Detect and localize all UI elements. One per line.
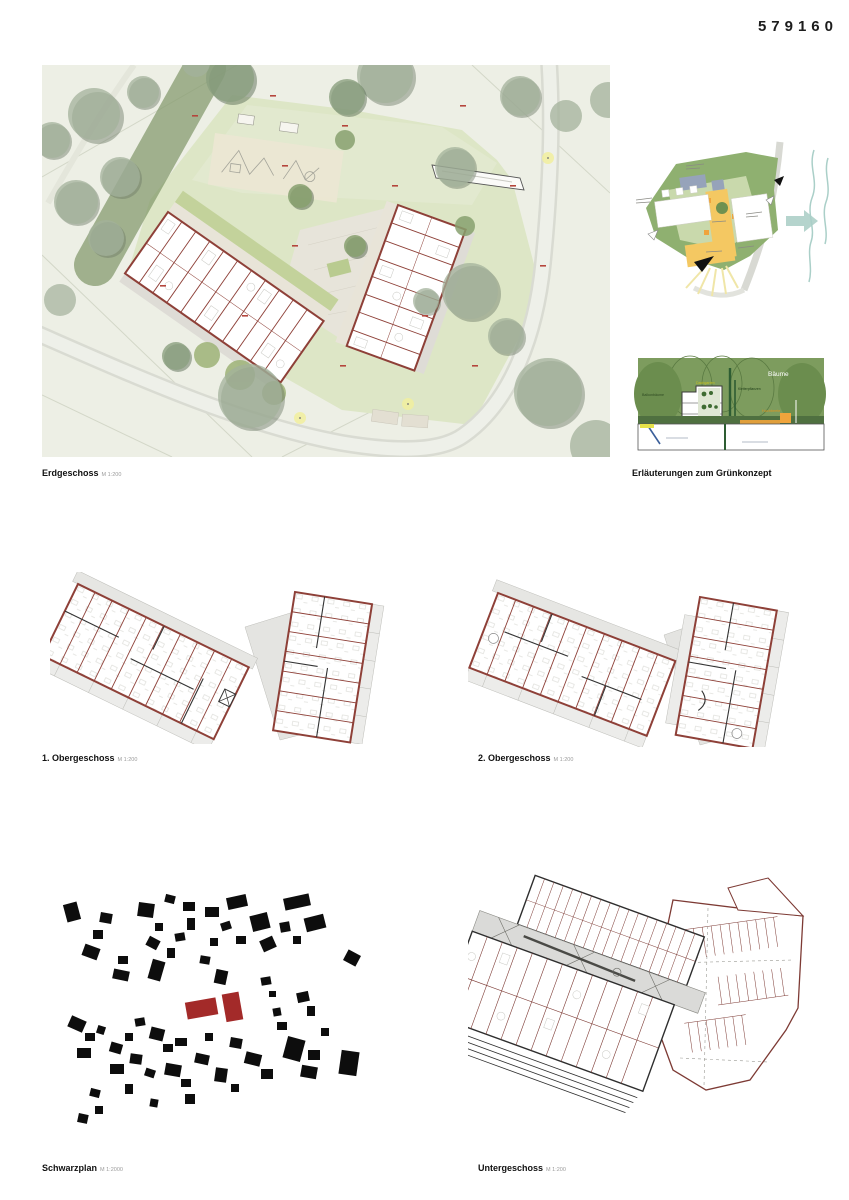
stream	[809, 150, 828, 282]
planter-strip	[740, 420, 780, 424]
og2-drawing	[468, 575, 818, 747]
untergeschoss-drawing	[468, 848, 818, 1123]
og1-left-wing	[50, 572, 258, 744]
og1-label: 1. ObergeschossM 1:200	[42, 748, 137, 766]
og2-label: 2. ObergeschossM 1:200	[478, 748, 573, 766]
kletterpflanzen-label: Kletterpflanzen	[738, 387, 761, 391]
og2-panel	[468, 575, 818, 747]
erdgeschoss-title: Erdgeschoss	[42, 468, 99, 478]
site-plan-drawing	[42, 65, 610, 457]
untergeschoss-panel	[468, 848, 818, 1123]
concept-tree	[716, 202, 728, 214]
sheet-id-number: 579160	[758, 18, 838, 35]
erdgeschoss-scale: M 1:200	[102, 472, 122, 478]
concept-diagram-panel	[628, 138, 840, 303]
og2-right-wing	[664, 595, 789, 747]
dachgarten-label: Dachgarten	[696, 381, 715, 385]
og2-scale: M 1:200	[554, 757, 574, 763]
hochbeet-box	[780, 413, 791, 423]
gruenkonzept-panel: Bäume Balkonbäume Dachgarten Kletterpfla…	[630, 350, 835, 458]
og2-left-wing	[468, 580, 683, 747]
gruenkonzept-drawing: Bäume Balkonbäume Dachgarten Kletterpfla…	[630, 350, 835, 458]
og2-title: 2. Obergeschoss	[478, 753, 551, 763]
og1-drawing	[50, 572, 385, 744]
untergeschoss-label: UntergeschossM 1:200	[478, 1158, 566, 1176]
untergeschoss-scale: M 1:200	[546, 1167, 566, 1173]
schwarzplan-title: Schwarzplan	[42, 1163, 97, 1173]
og1-panel	[50, 572, 385, 744]
schwarzplan-drawing	[55, 878, 390, 1140]
sun-rays	[686, 266, 738, 296]
og1-title: 1. Obergeschoss	[42, 753, 115, 763]
concept-diagram-drawing	[628, 138, 840, 303]
concept-road-lower	[694, 288, 744, 295]
hochbeete-label: Hochbeete	[762, 409, 780, 413]
schwarzplan-scale: M 1:2000	[100, 1167, 123, 1173]
untergeschoss-title: Untergeschoss	[478, 1163, 543, 1173]
basement-section	[638, 424, 824, 450]
project-buildings	[185, 992, 243, 1023]
gruenkonzept-title: Erläuterungen zum Grünkonzept	[632, 468, 772, 478]
balkonbaeume-label: Balkonbäume	[642, 393, 664, 397]
schwarzplan-panel	[55, 878, 390, 1140]
gruenkonzept-label: Erläuterungen zum Grünkonzept	[632, 463, 772, 481]
erdgeschoss-panel	[42, 65, 610, 457]
og1-scale: M 1:200	[118, 757, 138, 763]
water-arrow	[786, 210, 818, 232]
erdgeschoss-label: ErdgeschossM 1:200	[42, 463, 121, 481]
baeume-label: Bäume	[768, 371, 789, 378]
schwarzplan-label: SchwarzplanM 1:2000	[42, 1158, 123, 1176]
cellar-block	[468, 856, 723, 1123]
